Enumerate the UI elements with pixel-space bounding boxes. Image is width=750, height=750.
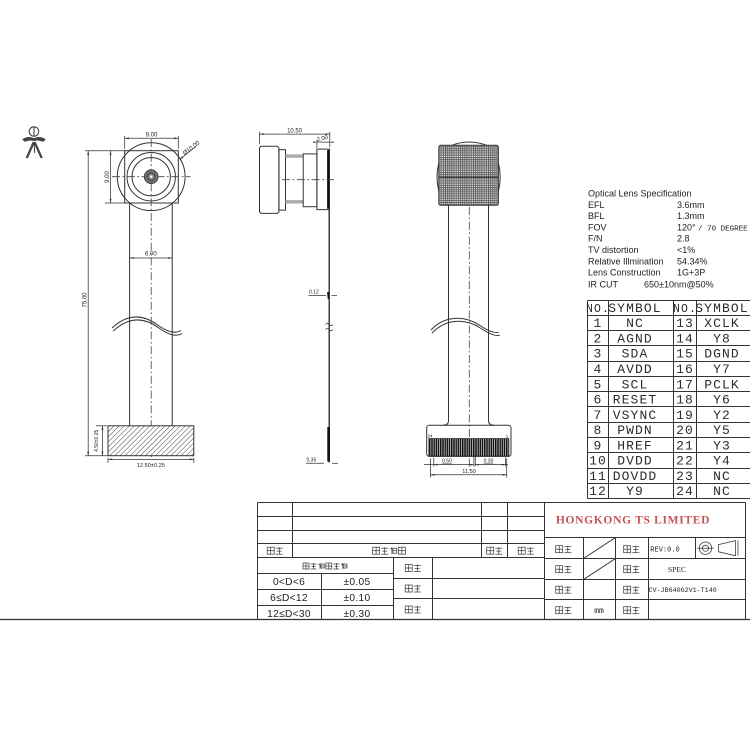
svg-text:1: 1 <box>506 434 509 439</box>
svg-text:7: 7 <box>594 408 603 423</box>
svg-text:16: 16 <box>676 362 694 377</box>
svg-text:Y4: Y4 <box>713 454 731 469</box>
svg-text:17: 17 <box>676 377 694 392</box>
svg-text:15: 15 <box>676 347 694 362</box>
svg-text:6: 6 <box>594 393 603 408</box>
svg-text:DVDD: DVDD <box>617 454 653 469</box>
svg-text:19: 19 <box>676 408 694 423</box>
svg-text:0.35: 0.35 <box>307 458 317 464</box>
svg-text:12.50±0.25: 12.50±0.25 <box>137 463 165 469</box>
svg-text:54.34%: 54.34% <box>677 256 708 266</box>
svg-text:23: 23 <box>676 469 694 484</box>
svg-text:1.3mm: 1.3mm <box>677 211 705 221</box>
svg-text:3: 3 <box>594 347 603 362</box>
svg-text:<1%: <1% <box>677 245 695 255</box>
svg-text:3.6mm: 3.6mm <box>677 200 705 210</box>
svg-text:RESET: RESET <box>613 393 658 408</box>
svg-text:12: 12 <box>589 484 607 499</box>
svg-text:NC: NC <box>626 316 644 331</box>
svg-text:HONGKONG TS LIMITED: HONGKONG TS LIMITED <box>556 515 710 527</box>
svg-text:Y2: Y2 <box>713 408 731 423</box>
svg-text:650±10nm@50%: 650±10nm@50% <box>644 279 714 289</box>
svg-text:VSYNC: VSYNC <box>613 408 658 423</box>
svg-text:9.00: 9.00 <box>146 133 158 139</box>
svg-text:DGND: DGND <box>704 347 740 362</box>
svg-text:24: 24 <box>428 434 434 439</box>
svg-text:SYMBOL: SYMBOL <box>695 301 748 316</box>
svg-text:Y7: Y7 <box>713 362 731 377</box>
svg-text:4: 4 <box>594 362 603 377</box>
svg-text:2.8: 2.8 <box>677 234 690 244</box>
svg-text:20: 20 <box>676 423 694 438</box>
svg-text:Y5: Y5 <box>713 423 731 438</box>
svg-text:CV-JB640G2V1-T140: CV-JB640G2V1-T140 <box>649 587 717 595</box>
svg-text:F/N: F/N <box>588 234 603 244</box>
svg-text:9.00: 9.00 <box>105 171 111 183</box>
svg-text:DOVDD: DOVDD <box>613 469 658 484</box>
svg-text:REV:0.0: REV:0.0 <box>650 547 679 555</box>
svg-text:NC: NC <box>713 469 731 484</box>
svg-text:13: 13 <box>676 316 694 331</box>
svg-text:12≤D<30: 12≤D<30 <box>267 609 311 620</box>
svg-text:PWDN: PWDN <box>617 423 653 438</box>
svg-text:EFL: EFL <box>588 200 605 210</box>
svg-text:6.00: 6.00 <box>145 252 157 258</box>
svg-text:FOV: FOV <box>588 222 607 232</box>
svg-text:9: 9 <box>594 438 603 453</box>
svg-text:1: 1 <box>594 316 603 331</box>
svg-text:mm: mm <box>594 607 604 616</box>
svg-text:21: 21 <box>676 438 694 453</box>
svg-text:IR CUT: IR CUT <box>588 279 618 289</box>
svg-text:0.30: 0.30 <box>484 459 494 465</box>
svg-text:Optical Lens Specification: Optical Lens Specification <box>588 189 692 199</box>
svg-text:10.50: 10.50 <box>287 128 303 134</box>
svg-text:2: 2 <box>594 332 603 347</box>
svg-text:5: 5 <box>594 377 603 392</box>
svg-text:TV distortion: TV distortion <box>588 245 639 255</box>
svg-text:Lens Construction: Lens Construction <box>588 268 661 278</box>
svg-text:75.00: 75.00 <box>82 292 88 308</box>
svg-text:11.50: 11.50 <box>462 469 476 475</box>
svg-text:BFL: BFL <box>588 211 605 221</box>
svg-text:SCL: SCL <box>622 377 649 392</box>
svg-text:AVDD: AVDD <box>617 362 653 377</box>
svg-text:22: 22 <box>676 454 694 469</box>
svg-text:SYMBOL: SYMBOL <box>608 301 661 316</box>
svg-text:±0.10: ±0.10 <box>344 593 371 604</box>
svg-text:NC: NC <box>713 484 731 499</box>
svg-text:SPEC: SPEC <box>668 565 686 574</box>
svg-text:NO.: NO. <box>673 303 697 316</box>
svg-text:NO.: NO. <box>586 303 610 316</box>
svg-text:24: 24 <box>676 484 694 499</box>
svg-text:4.50±0.25: 4.50±0.25 <box>94 429 100 451</box>
svg-text:PCLK: PCLK <box>704 377 740 392</box>
svg-text:14: 14 <box>676 332 694 347</box>
svg-text:11: 11 <box>589 469 607 484</box>
svg-text:HREF: HREF <box>617 438 653 453</box>
svg-text:0.12: 0.12 <box>309 290 319 296</box>
svg-text:SDA: SDA <box>622 347 649 362</box>
svg-text:Y6: Y6 <box>713 393 731 408</box>
svg-text:10: 10 <box>589 454 607 469</box>
svg-text:Relative Illmination: Relative Illmination <box>588 256 664 266</box>
svg-text:1G+3P: 1G+3P <box>677 268 705 278</box>
svg-text:8: 8 <box>594 423 603 438</box>
svg-text:18: 18 <box>676 393 694 408</box>
svg-text:Y3: Y3 <box>713 438 731 453</box>
svg-text:Y8: Y8 <box>713 332 731 347</box>
svg-text:XCLK: XCLK <box>704 316 740 331</box>
svg-text:Y9: Y9 <box>626 484 644 499</box>
svg-text:6≤D<12: 6≤D<12 <box>270 593 308 604</box>
svg-text:0<D<6: 0<D<6 <box>273 577 305 588</box>
svg-text:Ø10.00: Ø10.00 <box>182 140 202 157</box>
svg-text:0.50: 0.50 <box>442 459 452 465</box>
svg-text:AGND: AGND <box>617 332 653 347</box>
svg-text:120° / 70 DEGREE: 120° / 70 DEGREE <box>677 222 748 233</box>
svg-text:±0.30: ±0.30 <box>344 609 371 620</box>
svg-text:±0.05: ±0.05 <box>344 577 371 588</box>
